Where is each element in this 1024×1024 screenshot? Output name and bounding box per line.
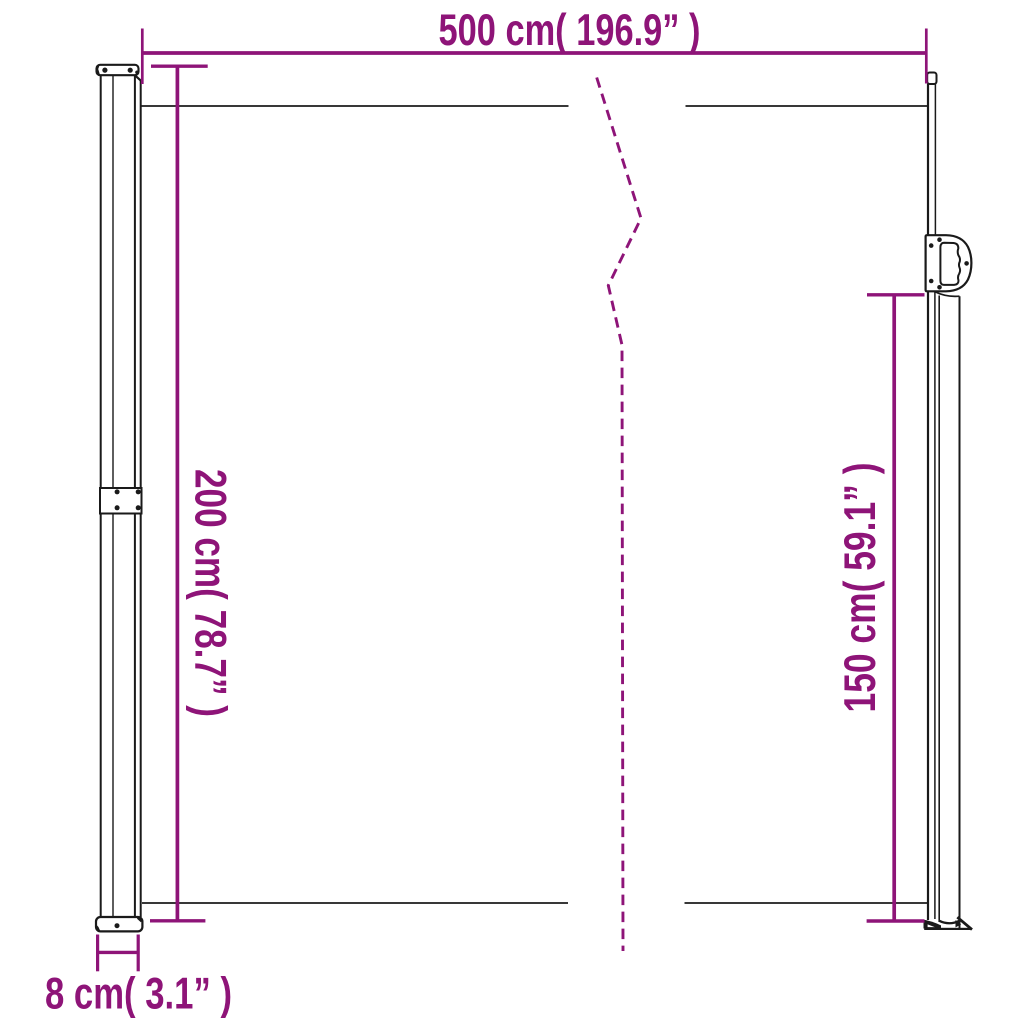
svg-text:150 cm( 59.1” ): 150 cm( 59.1” ) [836, 463, 885, 713]
svg-text:500 cm( 196.9” ): 500 cm( 196.9” ) [439, 6, 701, 55]
svg-text:8 cm( 3.1” ): 8 cm( 3.1” ) [45, 970, 232, 1019]
svg-text:200 cm( 78.7” ): 200 cm( 78.7” ) [186, 469, 235, 717]
